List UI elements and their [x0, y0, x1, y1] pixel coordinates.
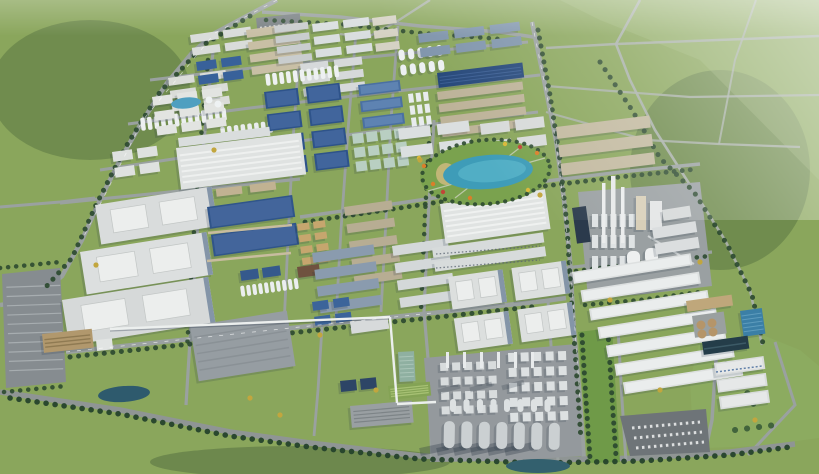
industrial-park-rendering: Aerial 3D rendering of an industrial par…: [0, 0, 819, 474]
pond-south: [506, 459, 570, 473]
aerial-scene-canvas: Aerial 3D rendering of an industrial par…: [0, 0, 819, 474]
white-box-building: [94, 338, 114, 353]
atmospheric-haze-top: [0, 0, 819, 36]
parking-southeast: [620, 409, 710, 456]
wwtp-blue-basin: [738, 308, 766, 339]
stacked-halls-southeast: [712, 356, 771, 412]
